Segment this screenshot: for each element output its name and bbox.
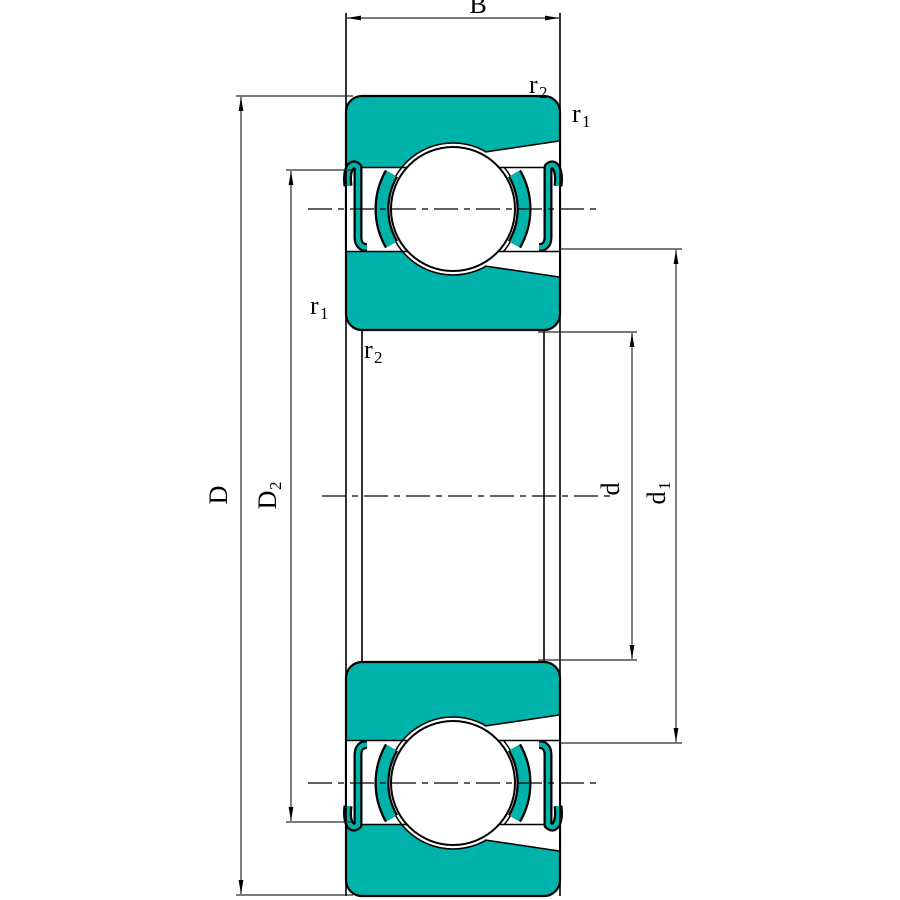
chamfer-r1-right-text: r (572, 99, 581, 128)
chamfer-label-r2-mid: r 2 (364, 335, 383, 367)
arrow-d1-bottom (674, 728, 679, 742)
bearing-section-bottom (346, 662, 560, 896)
dim-label-recess-diameter: D (253, 491, 282, 510)
dim-label-bore-diameter: d (596, 483, 625, 496)
chamfer-r1-mid-text: r (310, 291, 319, 320)
arrow-D-top (239, 97, 244, 111)
bearing-cross-section-diagram: B D D 2 d d 1 r 2 r 1 r 1 r 2 (0, 0, 900, 900)
dim-label-outer-diameter: D (204, 486, 233, 505)
chamfer-r2-mid-text: r (364, 335, 373, 364)
dim-label-bore-diameter-group: d (596, 483, 625, 496)
arrow-D2-bottom (289, 807, 294, 821)
arrow-B-right (545, 16, 559, 21)
chamfer-label-r1-mid: r 1 (310, 291, 329, 323)
dim-label-recess-diameter-group: D 2 (253, 482, 285, 510)
dim-label-shoulder-diameter-sub: 1 (655, 482, 674, 491)
chamfer-label-r2-top: r 2 (529, 70, 548, 102)
chamfer-r1-right-sub: 1 (582, 112, 591, 131)
chamfer-r2-mid-sub: 2 (374, 348, 383, 367)
bearing-drawing-canvas: B D D 2 d d 1 r 2 r 1 r 1 r 2 (0, 0, 900, 900)
dim-label-recess-diameter-sub: 2 (266, 482, 285, 491)
dim-label-shoulder-diameter-group: d 1 (642, 482, 674, 505)
chamfer-r2-top-sub: 2 (539, 83, 548, 102)
dim-label-outer-diameter-group: D (204, 486, 233, 505)
chamfer-r1-mid-sub: 1 (320, 304, 329, 323)
arrow-D2-top (289, 171, 294, 185)
arrow-d-bottom (630, 645, 635, 659)
arrow-D-bottom (239, 880, 244, 894)
arrow-d-top (630, 333, 635, 347)
dim-label-shoulder-diameter: d (642, 492, 671, 505)
bearing-section-top (346, 96, 560, 330)
arrow-d1-top (674, 250, 679, 264)
chamfer-label-r1-right: r 1 (572, 99, 591, 131)
chamfer-r2-top-text: r (529, 70, 538, 99)
dim-label-width: B (469, 0, 486, 19)
arrow-B-left (347, 16, 361, 21)
